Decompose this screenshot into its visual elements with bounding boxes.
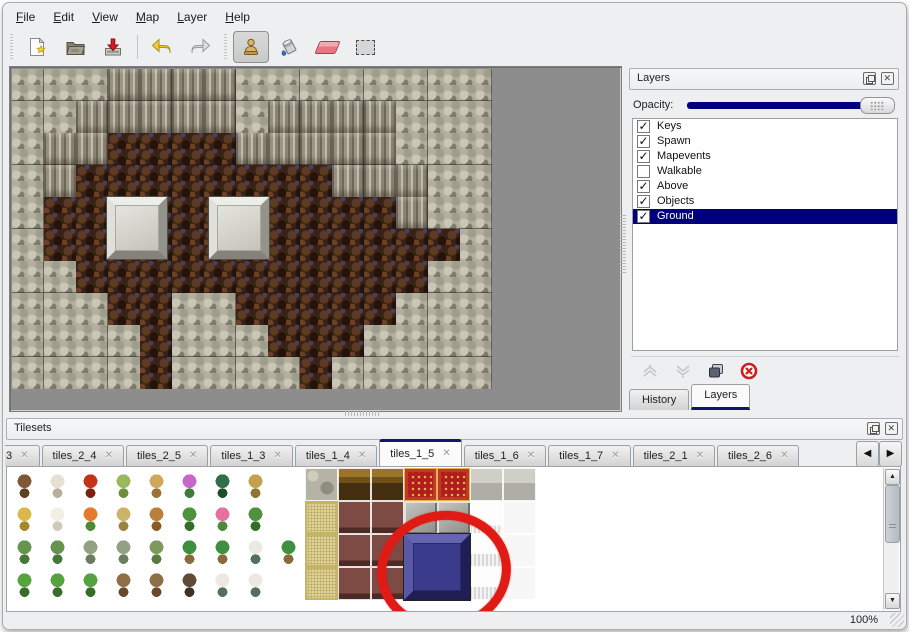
tileset-tab-tiles_2_6[interactable]: tiles_2_6✕ <box>717 445 799 466</box>
tileset-tab-label: tiles_2_4 <box>53 446 97 466</box>
tileset-tile-grasstuft[interactable] <box>107 501 140 534</box>
redo-button[interactable] <box>182 31 218 63</box>
tileset-tile-trunk[interactable] <box>140 468 173 501</box>
close-tab-icon[interactable]: ✕ <box>20 446 28 466</box>
layer-name: Objects <box>657 195 694 207</box>
tileset-tile-maroontile[interactable] <box>338 567 371 600</box>
map-tile-stone-wall[interactable] <box>428 69 460 101</box>
layer-name: Ground <box>657 210 694 222</box>
scroll-tabs-right-button[interactable]: ▶ <box>879 441 902 467</box>
opacity-row: Opacity: <box>633 97 897 113</box>
tileset-tab-label: tiles_1_3 <box>221 446 265 466</box>
opacity-label: Opacity: <box>633 99 673 111</box>
map-tile-cliff-face[interactable] <box>140 101 172 133</box>
layer-visibility-checkbox[interactable]: ✓ <box>637 210 650 223</box>
float-panel-icon[interactable] <box>863 72 876 85</box>
new-file-icon <box>26 36 48 58</box>
map-tile-cliff-face[interactable] <box>236 133 268 165</box>
map-tile-dirt-floor[interactable] <box>300 261 332 293</box>
zoom-level: 100% <box>850 614 878 626</box>
map-tile-dirt-floor[interactable] <box>428 229 460 261</box>
tileset-tile-bigflower[interactable] <box>74 468 107 501</box>
map-tile-stone-wall[interactable] <box>428 197 460 229</box>
map-tile-dirt-floor[interactable] <box>108 165 140 197</box>
map-tile-dirt-floor[interactable] <box>76 165 108 197</box>
stamp-tool-button[interactable] <box>233 31 269 63</box>
map-tile-stone-wall[interactable] <box>76 325 108 357</box>
tileset-tile-woodtile[interactable] <box>338 468 371 501</box>
map-tile-dirt-floor[interactable] <box>140 165 172 197</box>
tileset-tile-snowpine[interactable] <box>206 567 239 600</box>
open-file-button[interactable] <box>57 31 93 63</box>
map-tile-dirt-floor[interactable] <box>332 293 364 325</box>
layer-row-ground[interactable]: ✓Ground <box>633 209 897 224</box>
map-tile-stone-wall[interactable] <box>12 101 44 133</box>
dock-tab-history[interactable]: History <box>629 389 689 410</box>
tileset-tile-snowmound[interactable] <box>41 501 74 534</box>
selection-rectangle-icon <box>356 40 375 55</box>
map-tile-stone-wall[interactable] <box>44 101 76 133</box>
map-tile-dirt-floor[interactable] <box>300 197 332 229</box>
map-tile-dirt-floor[interactable] <box>364 261 396 293</box>
map-tile-dirt-floor[interactable] <box>268 229 300 261</box>
map-tile-stone-wall[interactable] <box>460 133 492 165</box>
map-tile-dirt-floor[interactable] <box>108 293 140 325</box>
map-tile-stone-wall[interactable] <box>300 69 332 101</box>
map-tile-cliff-face[interactable] <box>172 69 204 101</box>
map-tile-stone-wall[interactable] <box>460 229 492 261</box>
tileset-tile-palm[interactable] <box>173 534 206 567</box>
close-tab-icon[interactable]: ✕ <box>696 446 704 466</box>
tileset-tile-stonetile[interactable] <box>305 468 338 501</box>
map-tile-stone-wall[interactable] <box>236 325 268 357</box>
map-tile-dirt-floor[interactable] <box>204 133 236 165</box>
map-tile-dirt-floor[interactable] <box>204 261 236 293</box>
map-tile-dirt-floor[interactable] <box>140 357 172 389</box>
layer-row-walkable[interactable]: Walkable <box>633 164 897 179</box>
map-tile-stone-wall[interactable] <box>12 229 44 261</box>
map-tile-stone-wall[interactable] <box>236 357 268 389</box>
map-tile-dirt-floor[interactable] <box>140 325 172 357</box>
map-tile-stone-wall[interactable] <box>460 261 492 293</box>
layer-visibility-checkbox[interactable] <box>637 165 650 178</box>
layer-visibility-checkbox[interactable]: ✓ <box>637 180 650 193</box>
map-tile-dirt-floor[interactable] <box>76 261 108 293</box>
duplicate-layer-button[interactable] <box>703 359 729 383</box>
new-file-button[interactable] <box>19 31 55 63</box>
tileset-tab-label: tiles_1_4 <box>306 446 350 466</box>
tileset-tile-fern[interactable] <box>206 468 239 501</box>
map-tile-cliff-face[interactable] <box>332 101 364 133</box>
map-tile-stone-wall[interactable] <box>172 293 204 325</box>
dock-tab-bar: HistoryLayers <box>629 386 752 410</box>
map-tile-stone-wall[interactable] <box>204 293 236 325</box>
map-tile-dirt-floor[interactable] <box>140 261 172 293</box>
map-tile-dirt-floor[interactable] <box>172 229 204 261</box>
tileset-tile-blank[interactable] <box>272 468 305 501</box>
opacity-slider[interactable] <box>687 97 895 113</box>
map-tile-cliff-face[interactable] <box>268 133 300 165</box>
tileset-tile-maroontile[interactable] <box>338 501 371 534</box>
map-tile-stone-wall[interactable] <box>332 357 364 389</box>
map-tile-dirt-floor[interactable] <box>236 165 268 197</box>
map-tile-stone-wall[interactable] <box>332 69 364 101</box>
map-tile-stone-wall[interactable] <box>108 357 140 389</box>
opacity-slider-handle[interactable] <box>860 97 895 114</box>
map-tile-dirt-floor[interactable] <box>172 197 204 229</box>
tileset-tile-snowpine[interactable] <box>239 567 272 600</box>
layer-row-mapevents[interactable]: ✓Mapevents <box>633 149 897 164</box>
map-tile-cliff-face[interactable] <box>140 69 172 101</box>
map-tile-dirt-floor[interactable] <box>44 229 76 261</box>
menu-edit[interactable]: Edit <box>44 7 83 27</box>
map-tile-dirt-floor[interactable] <box>332 229 364 261</box>
redo-icon <box>188 36 212 58</box>
map-tile-stone-wall[interactable] <box>172 357 204 389</box>
tileset-tab-label: tiles_2_1 <box>644 446 688 466</box>
scroll-up-button[interactable]: ▲ <box>885 469 900 485</box>
fill-tool-button[interactable] <box>271 31 307 63</box>
eraser-tool-button[interactable] <box>309 31 345 63</box>
map-tile-cliff-face[interactable] <box>364 101 396 133</box>
map-tile-dirt-floor[interactable] <box>300 357 332 389</box>
map-tile-stone-wall[interactable] <box>12 165 44 197</box>
tileset-tab-3[interactable]: 3✕ <box>5 445 40 466</box>
map-object-pedestal[interactable] <box>107 197 167 259</box>
layer-visibility-checkbox[interactable]: ✓ <box>637 120 650 133</box>
map-tile-stone-wall[interactable] <box>428 165 460 197</box>
map-tile-dirt-floor[interactable] <box>236 293 268 325</box>
tileset-tile-pinkflower[interactable] <box>206 501 239 534</box>
map-tile-dirt-floor[interactable] <box>300 229 332 261</box>
dock-tab-layers[interactable]: Layers <box>691 384 750 410</box>
status-bar: 100% <box>3 612 906 629</box>
map-tile-cliff-face[interactable] <box>332 133 364 165</box>
map-tile-dirt-floor[interactable] <box>300 325 332 357</box>
map-tile-dirt-floor[interactable] <box>268 293 300 325</box>
map-tile-dirt-floor[interactable] <box>172 165 204 197</box>
map-tile-stone-wall[interactable] <box>268 69 300 101</box>
menu-help[interactable]: Help <box>216 7 259 27</box>
scrollbar-thumb[interactable] <box>885 485 900 543</box>
map-tile-cliff-face[interactable] <box>76 133 108 165</box>
tileset-tab-tiles_2_1[interactable]: tiles_2_1✕ <box>633 445 715 466</box>
tileset-tile-tree[interactable] <box>8 468 41 501</box>
map-tile-stone-wall[interactable] <box>460 101 492 133</box>
map-tile-stone-wall[interactable] <box>12 325 44 357</box>
menu-bar: FileEditViewMapLayerHelp <box>7 6 902 28</box>
map-tile-stone-wall[interactable] <box>428 101 460 133</box>
save-icon <box>102 36 124 58</box>
tileset-tile-snowpine[interactable] <box>239 534 272 567</box>
move-layer-down-button[interactable] <box>670 359 696 383</box>
tileset-tab-label: 3 <box>6 446 12 466</box>
float-panel-icon[interactable] <box>867 422 880 435</box>
map-tile-dirt-floor[interactable] <box>364 229 396 261</box>
tileset-tile-conifer[interactable] <box>8 567 41 600</box>
map-tile-cliff-face[interactable] <box>396 197 428 229</box>
map-editor-window: FileEditViewMapLayerHelp <box>2 2 907 630</box>
tileset-tile-stump[interactable] <box>107 468 140 501</box>
layer-name: Above <box>657 180 688 192</box>
tileset-tile-snowtree[interactable] <box>41 468 74 501</box>
map-tile-cliff-face[interactable] <box>204 69 236 101</box>
map-tile-stone-wall[interactable] <box>76 69 108 101</box>
map-tile-cliff-face[interactable] <box>44 165 76 197</box>
menu-layer[interactable]: Layer <box>168 7 216 27</box>
map-tile-stone-wall[interactable] <box>460 69 492 101</box>
screen: FileEditViewMapLayerHelp <box>0 0 909 632</box>
layer-row-objects[interactable]: ✓Objects <box>633 194 897 209</box>
undo-button[interactable] <box>144 31 180 63</box>
map-tile-dirt-floor[interactable] <box>268 197 300 229</box>
map-tile-stone-wall[interactable] <box>396 357 428 389</box>
tileset-tile-sprouts[interactable] <box>41 534 74 567</box>
map-tile-dirt-floor[interactable] <box>364 293 396 325</box>
tileset-tile-lilypad[interactable] <box>173 501 206 534</box>
map-tile-dirt-floor[interactable] <box>268 261 300 293</box>
layer-row-spawn[interactable]: ✓Spawn <box>633 134 897 149</box>
map-tile-stone-wall[interactable] <box>12 197 44 229</box>
tileset-tile-silvertile[interactable] <box>503 468 536 501</box>
map-tile-stone-wall[interactable] <box>44 325 76 357</box>
tileset-tab-label: tiles_1_5 <box>390 444 434 464</box>
tileset-tile-purpleflower[interactable] <box>173 468 206 501</box>
scroll-down-button[interactable]: ▼ <box>885 593 900 609</box>
map-tile-stone-wall[interactable] <box>12 133 44 165</box>
map-tile-stone-wall[interactable] <box>396 325 428 357</box>
map-tile-stone-wall[interactable] <box>460 357 492 389</box>
map-tile-dirt-floor[interactable] <box>332 261 364 293</box>
tileset-tile-blank[interactable] <box>272 567 305 600</box>
tileset-tile-drygrass[interactable] <box>239 468 272 501</box>
close-tab-icon[interactable]: ✕ <box>189 446 197 466</box>
tileset-tab-tiles_2_4[interactable]: tiles_2_4✕ <box>42 445 124 466</box>
map-tile-stone-wall[interactable] <box>428 293 460 325</box>
map-tile-stone-wall[interactable] <box>12 293 44 325</box>
tileset-tile-deadtree[interactable] <box>140 567 173 600</box>
tileset-tile-bush[interactable] <box>107 534 140 567</box>
map-tile-stone-wall[interactable] <box>236 69 268 101</box>
close-tab-icon[interactable]: ✕ <box>780 446 788 466</box>
layer-buttons <box>631 356 899 384</box>
map-tile-stone-wall[interactable] <box>12 357 44 389</box>
tileset-tile-redcarpet[interactable] <box>437 468 470 501</box>
close-tab-icon[interactable]: ✕ <box>611 446 619 466</box>
map-tile-stone-wall[interactable] <box>44 293 76 325</box>
tileset-tile-palm[interactable] <box>206 534 239 567</box>
map-tile-dirt-floor[interactable] <box>268 325 300 357</box>
map-tile-dirt-floor[interactable] <box>268 165 300 197</box>
map-tile-stone-wall[interactable] <box>44 261 76 293</box>
map-tile-cliff-face[interactable] <box>300 133 332 165</box>
map-tile-stone-wall[interactable] <box>364 357 396 389</box>
map-tile-stone-wall[interactable] <box>172 325 204 357</box>
tileset-tile-maroontile[interactable] <box>338 534 371 567</box>
vertical-splitter[interactable] <box>621 215 626 273</box>
map-tile-cliff-face[interactable] <box>300 101 332 133</box>
map-tile-dirt-floor[interactable] <box>300 293 332 325</box>
map-tile-dirt-floor[interactable] <box>332 197 364 229</box>
map-tile-cliff-face[interactable] <box>108 69 140 101</box>
tileset-tile-tanwoven[interactable] <box>305 534 338 567</box>
map-tile-stone-wall[interactable] <box>428 261 460 293</box>
map-tile-dirt-floor[interactable] <box>108 261 140 293</box>
map-canvas[interactable] <box>12 69 492 389</box>
map-tile-dirt-floor[interactable] <box>396 229 428 261</box>
tilesets-dock-title: Tilesets <box>14 422 52 434</box>
horizontal-splitter[interactable] <box>345 411 381 416</box>
tileset-tab-tiles_1_3[interactable]: tiles_1_3✕ <box>210 445 292 466</box>
close-tab-icon[interactable]: ✕ <box>527 446 535 466</box>
tileset-scrollbar[interactable]: ▲ ▼ <box>883 468 899 610</box>
tileset-tile-sprouts[interactable] <box>8 534 41 567</box>
map-tile-dirt-floor[interactable] <box>300 165 332 197</box>
tileset-tile-lilypad[interactable] <box>239 501 272 534</box>
tileset-tile-blank[interactable] <box>272 501 305 534</box>
map-tile-stone-wall[interactable] <box>44 69 76 101</box>
map-tile-stone-wall[interactable] <box>396 133 428 165</box>
map-tile-stone-wall[interactable] <box>396 101 428 133</box>
map-tile-stone-wall[interactable] <box>236 101 268 133</box>
map-tile-dirt-floor[interactable] <box>172 133 204 165</box>
toolbar-grip[interactable] <box>222 34 229 60</box>
layer-visibility-checkbox[interactable]: ✓ <box>637 150 650 163</box>
tileset-tile-whitetile[interactable] <box>503 501 536 534</box>
close-tab-icon[interactable]: ✕ <box>273 446 281 466</box>
map-tile-stone-wall[interactable] <box>364 69 396 101</box>
tileset-tile-leaves[interactable] <box>140 501 173 534</box>
map-tile-dirt-floor[interactable] <box>44 197 76 229</box>
map-tile-stone-wall[interactable] <box>268 357 300 389</box>
tileset-tile-orangeflowers[interactable] <box>74 501 107 534</box>
map-tile-stone-wall[interactable] <box>76 357 108 389</box>
tilesets-dock-header: Tilesets <box>6 418 903 440</box>
map-tile-dirt-floor[interactable] <box>76 229 108 261</box>
tileset-tile-tanwoven[interactable] <box>305 567 338 600</box>
map-tile-stone-wall[interactable] <box>204 325 236 357</box>
map-tile-dirt-floor[interactable] <box>364 197 396 229</box>
map-tile-dirt-floor[interactable] <box>108 133 140 165</box>
close-tab-icon[interactable]: ✕ <box>358 446 366 466</box>
layer-row-above[interactable]: ✓Above <box>633 179 897 194</box>
map-tile-dirt-floor[interactable] <box>332 325 364 357</box>
toolbar-grip[interactable] <box>8 34 15 60</box>
map-tile-stone-wall[interactable] <box>12 261 44 293</box>
map-tile-stone-wall[interactable] <box>428 325 460 357</box>
map-tile-stone-wall[interactable] <box>428 357 460 389</box>
select-tool-button[interactable] <box>347 31 383 63</box>
layer-visibility-checkbox[interactable]: ✓ <box>637 135 650 148</box>
menu-view[interactable]: View <box>83 7 127 27</box>
tileset-tile-bush[interactable] <box>74 534 107 567</box>
map-tile-cliff-face[interactable] <box>332 165 364 197</box>
resize-grip[interactable] <box>890 613 904 627</box>
map-tile-stone-wall[interactable] <box>108 325 140 357</box>
layer-name: Keys <box>657 120 681 132</box>
map-tile-stone-wall[interactable] <box>460 165 492 197</box>
menu-file[interactable]: File <box>7 7 44 27</box>
map-tile-cliff-face[interactable] <box>364 133 396 165</box>
tileset-tab-label: tiles_1_6 <box>475 446 519 466</box>
tileset-tile-darktree[interactable] <box>173 567 206 600</box>
map-tile-dirt-floor[interactable] <box>140 293 172 325</box>
map-tile-dirt-floor[interactable] <box>172 261 204 293</box>
tileset-tile-palm[interactable] <box>272 534 305 567</box>
map-tile-stone-wall[interactable] <box>364 325 396 357</box>
layers-dock: Layers Opacity: ✓Keys✓Spawn✓MapeventsWal… <box>627 66 903 410</box>
map-tile-stone-wall[interactable] <box>460 325 492 357</box>
tileset-tab-tiles_2_5[interactable]: tiles_2_5✕ <box>126 445 208 466</box>
map-tile-dirt-floor[interactable] <box>76 197 108 229</box>
map-viewport <box>9 66 622 412</box>
menu-map[interactable]: Map <box>127 7 168 27</box>
close-tab-icon[interactable]: ✕ <box>105 446 113 466</box>
tileset-tab-tiles_1_7[interactable]: tiles_1_7✕ <box>548 445 630 466</box>
map-tile-stone-wall[interactable] <box>396 69 428 101</box>
tileset-tab-tiles_1_4[interactable]: tiles_1_4✕ <box>295 445 377 466</box>
map-tile-stone-wall[interactable] <box>12 69 44 101</box>
tileset-tile-hay[interactable] <box>8 501 41 534</box>
tileset-tab-tiles_1_6[interactable]: tiles_1_6✕ <box>464 445 546 466</box>
layer-row-keys[interactable]: ✓Keys <box>633 119 897 134</box>
map-tile-cliff-face[interactable] <box>364 165 396 197</box>
map-tile-cliff-face[interactable] <box>44 133 76 165</box>
map-tile-cliff-face[interactable] <box>172 101 204 133</box>
toolbar-separator <box>137 35 138 59</box>
close-tab-icon[interactable]: ✕ <box>442 444 450 464</box>
map-tile-stone-wall[interactable] <box>44 357 76 389</box>
map-tile-cliff-face[interactable] <box>76 101 108 133</box>
map-tile-cliff-face[interactable] <box>204 101 236 133</box>
map-tile-stone-wall[interactable] <box>460 293 492 325</box>
layers-dock-header: Layers <box>629 68 899 90</box>
layer-name: Mapevents <box>657 150 711 162</box>
map-object-pedestal[interactable] <box>209 197 269 259</box>
delete-layer-button[interactable] <box>736 359 762 383</box>
map-tile-dirt-floor[interactable] <box>204 165 236 197</box>
tileset-tile-sprig[interactable] <box>140 534 173 567</box>
map-tile-cliff-face[interactable] <box>268 101 300 133</box>
tileset-tile-conifer[interactable] <box>41 567 74 600</box>
map-tile-cliff-face[interactable] <box>108 101 140 133</box>
tileset-tile-conifer[interactable] <box>74 567 107 600</box>
undo-icon <box>150 36 174 58</box>
tileset-tile-tanwoven[interactable] <box>305 501 338 534</box>
tileset-tile-silvertile[interactable] <box>470 468 503 501</box>
map-tile-stone-wall[interactable] <box>460 197 492 229</box>
tileset-tile-woodtile[interactable] <box>371 468 404 501</box>
map-tile-stone-wall[interactable] <box>396 293 428 325</box>
map-tile-stone-wall[interactable] <box>428 133 460 165</box>
tileset-canvas[interactable]: ▲ ▼ <box>6 466 901 612</box>
tileset-tab-tiles_1_5[interactable]: tiles_1_5✕ <box>379 439 461 466</box>
close-panel-icon[interactable] <box>885 422 898 435</box>
tileset-tile-redcarpet[interactable] <box>404 468 437 501</box>
layer-visibility-checkbox[interactable]: ✓ <box>637 195 650 208</box>
scroll-tabs-left-button[interactable]: ◀ <box>856 441 879 467</box>
map-tile-dirt-floor[interactable] <box>236 261 268 293</box>
move-layer-up-button[interactable] <box>637 359 663 383</box>
tileset-tile-deadtree[interactable] <box>107 567 140 600</box>
map-tile-dirt-floor[interactable] <box>140 133 172 165</box>
map-tile-stone-wall[interactable] <box>76 293 108 325</box>
save-file-button[interactable] <box>95 31 131 63</box>
close-panel-icon[interactable] <box>881 72 894 85</box>
map-tile-stone-wall[interactable] <box>204 357 236 389</box>
map-tile-cliff-face[interactable] <box>396 165 428 197</box>
map-tile-dirt-floor[interactable] <box>396 261 428 293</box>
